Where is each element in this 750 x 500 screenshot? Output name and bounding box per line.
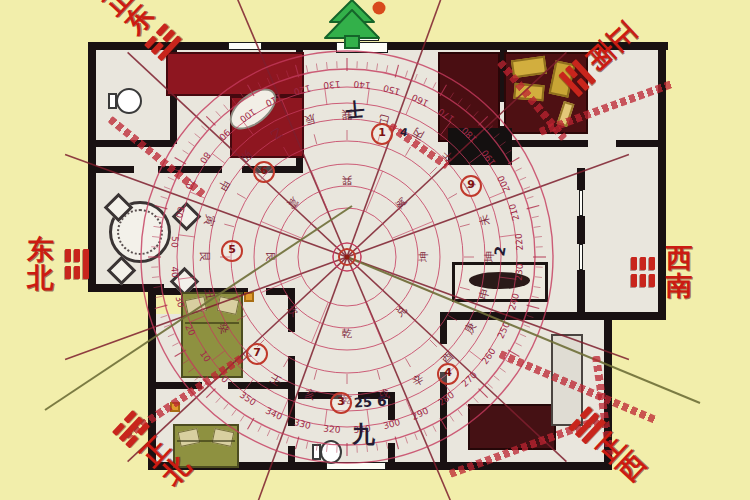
degree-tick <box>175 350 186 357</box>
mountain-char: 卯 <box>238 148 255 165</box>
luoshu-number-3: 3 <box>330 392 352 414</box>
degree-label: 80 <box>198 150 213 165</box>
mountain-char: 癸 <box>215 320 232 336</box>
degree-tick <box>286 71 288 78</box>
degree-tick <box>415 433 418 440</box>
bagua-divider <box>261 221 302 238</box>
bagua-divider <box>366 302 383 343</box>
bagua-char: 震 <box>285 195 301 211</box>
mountain-char: 壬 <box>268 372 284 389</box>
degree-label: 320 <box>323 424 341 435</box>
degree-tick <box>535 237 542 238</box>
degree-tick <box>473 397 478 402</box>
degree-tick <box>405 71 407 78</box>
trigram-broken-bar <box>74 249 80 262</box>
bagua-divider <box>311 302 328 343</box>
degree-tick <box>494 376 499 380</box>
trigram-broken-bar <box>640 274 646 287</box>
degree-tick <box>153 226 160 227</box>
degree-tick <box>258 425 261 431</box>
degree-tick <box>248 418 255 429</box>
direction-label-southwest: 西南 <box>628 244 694 300</box>
degree-label: 340 <box>264 406 284 422</box>
annotation-text: 九 <box>352 419 375 450</box>
degree-tick <box>508 158 519 165</box>
north-arrow-tier2 <box>325 10 379 38</box>
degree-tick <box>532 296 539 297</box>
degree-label: 120 <box>292 83 311 97</box>
trigram-solid-bar <box>83 249 89 279</box>
degree-tick <box>224 105 228 110</box>
direction-label-southwest-text: 西南 <box>665 244 694 300</box>
inner-tick <box>448 194 457 199</box>
degree-tick <box>466 404 470 409</box>
degree-tick <box>152 277 159 278</box>
inner-tick <box>377 370 380 380</box>
degree-tick <box>240 416 244 422</box>
inner-tick <box>460 287 470 290</box>
degree-tick <box>479 389 488 398</box>
trigram-row <box>640 257 646 287</box>
mountain-char: 庚 <box>462 320 479 336</box>
degree-tick <box>164 187 171 190</box>
degree-tick <box>487 383 492 388</box>
degree-label: 190 <box>480 148 498 168</box>
degree-tick <box>172 343 178 346</box>
degree-tick <box>458 98 462 104</box>
degree-tick <box>153 287 160 288</box>
inner-tick <box>284 147 289 156</box>
sector-divider <box>244 122 254 135</box>
degree-tick <box>494 134 499 138</box>
degree-tick <box>532 216 539 217</box>
degree-label: 210 <box>507 202 521 221</box>
degree-tick <box>206 116 215 125</box>
degree-label: 250 <box>496 320 512 340</box>
degree-tick <box>267 78 270 84</box>
floor-plan-stage: 0102030405060708090100110120130140150160… <box>0 0 750 500</box>
degree-tick <box>527 315 534 317</box>
degree-label: 110 <box>264 92 284 108</box>
degree-tick <box>206 389 215 398</box>
trigram-row <box>65 249 71 279</box>
degree-tick <box>327 62 328 69</box>
sector-divider <box>441 122 451 135</box>
degree-tick <box>367 62 368 69</box>
degree-tick <box>240 93 244 99</box>
degree-label: 200 <box>496 174 512 194</box>
sector-divider <box>406 100 412 115</box>
sector-divider <box>469 154 482 164</box>
degree-tick <box>224 404 228 409</box>
sector-divider <box>178 277 194 279</box>
mountain-char: 丑 <box>202 287 217 301</box>
degree-label: 130 <box>323 79 341 90</box>
degree-tick <box>155 216 162 217</box>
degree-label: 50 <box>169 236 180 249</box>
trigram-bars <box>65 249 89 279</box>
bagua-char: 巽 <box>342 175 353 187</box>
degree-tick <box>450 416 454 422</box>
degree-tick <box>161 315 168 317</box>
degree-tick <box>534 226 541 227</box>
degree-tick <box>306 65 307 72</box>
trigram-broken-bar <box>640 257 646 270</box>
degree-label: 280 <box>436 390 456 408</box>
luoshu-number-6: 6 <box>253 161 275 183</box>
degree-tick <box>520 334 526 337</box>
north-arrow-icon <box>318 0 398 60</box>
degree-label: 10 <box>198 349 213 364</box>
degree-tick <box>327 445 328 452</box>
degree-label: 260 <box>480 346 498 366</box>
degree-tick <box>277 433 280 440</box>
degree-label: 220 <box>514 233 525 251</box>
sector-divider <box>469 351 482 361</box>
degree-tick <box>450 93 454 99</box>
inner-tick <box>314 134 317 144</box>
trigram-broken-bar <box>65 266 71 279</box>
bagua-divider <box>392 221 433 238</box>
direction-label-northeast-text: 东北 <box>26 236 55 292</box>
degree-label: 140 <box>353 79 371 90</box>
degree-tick <box>424 78 427 84</box>
trigram-broken-bar <box>74 266 80 279</box>
inner-tick <box>460 224 470 227</box>
bagua-divider <box>366 171 383 212</box>
mountain-char: 寅 <box>202 213 217 227</box>
degree-tick <box>386 442 387 449</box>
degree-tick <box>527 196 534 198</box>
bagua-divider <box>311 171 328 212</box>
degree-tick <box>515 343 521 346</box>
sector-divider <box>212 351 225 361</box>
sector-divider <box>244 379 254 392</box>
trigram-southwest-icon <box>631 257 655 287</box>
degree-tick <box>479 116 488 125</box>
degree-tick <box>386 65 387 72</box>
degree-tick <box>188 368 194 372</box>
degree-tick <box>506 150 512 154</box>
north-arrow-stem <box>345 36 359 48</box>
degree-tick <box>405 437 407 444</box>
sector-divider <box>212 154 225 164</box>
degree-tick <box>440 418 447 429</box>
degree-label: 160 <box>410 92 430 108</box>
inner-tick <box>237 316 246 321</box>
bagua-char: 坎 <box>285 303 301 319</box>
degree-tick <box>473 111 478 116</box>
degree-label: 180 <box>460 125 479 144</box>
degree-tick <box>316 63 317 70</box>
bagua-char: 兑 <box>393 302 409 318</box>
degree-label: 60 <box>174 205 187 219</box>
degree-tick <box>258 82 261 88</box>
degree-tick <box>175 158 186 165</box>
inner-tick <box>314 370 317 380</box>
degree-label: 240 <box>507 292 521 311</box>
degree-tick <box>232 410 236 416</box>
degree-tick <box>377 444 378 451</box>
degree-tick <box>152 237 159 238</box>
degree-tick <box>155 296 162 297</box>
luoshu-number-1: 1 <box>371 123 393 145</box>
inner-tick <box>284 358 289 367</box>
annotation-text: 6 <box>377 393 387 409</box>
inner-tick <box>237 194 246 199</box>
trigram-broken-bar <box>65 249 71 262</box>
degree-tick <box>161 196 168 198</box>
degree-tick <box>183 360 189 364</box>
degree-tick <box>500 368 506 372</box>
mountain-char: 申 <box>477 287 492 301</box>
degree-label: 20 <box>183 323 197 338</box>
degree-label: 90 <box>217 127 232 142</box>
degree-tick <box>195 376 200 380</box>
luoshu-number-7: 7 <box>246 343 268 365</box>
annotation-text: 干 <box>344 95 365 123</box>
degree-tick <box>458 410 462 416</box>
mountain-char: 艮 <box>198 252 211 263</box>
degree-tick <box>216 397 221 402</box>
luoshu-number-4: 4 <box>437 363 459 385</box>
annotation-text: 25 <box>353 394 372 410</box>
trigram-broken-bar <box>631 274 637 287</box>
degree-tick <box>520 177 526 180</box>
degree-tick <box>277 74 280 81</box>
inner-tick <box>448 316 457 321</box>
bagua-char: 乾 <box>342 327 353 339</box>
trigram-broken-bar <box>649 274 655 287</box>
degree-tick <box>232 98 236 104</box>
inner-tick <box>406 358 411 367</box>
degree-tick <box>201 126 206 131</box>
mountain-char: 未 <box>477 213 492 227</box>
degree-tick <box>466 105 470 110</box>
degree-tick <box>415 74 418 81</box>
degree-label: 230 <box>514 263 525 281</box>
degree-tick <box>267 430 270 436</box>
bagua-char: 离 <box>392 195 408 211</box>
degree-tick <box>424 430 427 436</box>
trigram-row <box>83 249 89 279</box>
degree-tick <box>195 134 200 138</box>
degree-tick <box>433 82 436 88</box>
degree-tick <box>168 334 174 337</box>
compass-hub-dot <box>345 255 350 260</box>
degree-tick <box>168 177 174 180</box>
inner-tick <box>406 147 411 156</box>
degree-label: 300 <box>382 417 401 431</box>
mountain-char: 乙 <box>268 125 284 142</box>
degree-tick <box>216 111 221 116</box>
degree-tick <box>188 142 194 146</box>
sector-divider <box>190 316 205 322</box>
degree-tick <box>535 277 542 278</box>
degree-tick <box>433 425 436 431</box>
degree-tick <box>500 142 506 146</box>
trigram-broken-bar <box>649 257 655 270</box>
trigram-northeast-icon <box>65 249 89 279</box>
arrow-ornament-dot <box>373 2 386 15</box>
mountain-char: 辛 <box>410 372 426 389</box>
degree-label: 150 <box>382 83 401 97</box>
degree-tick <box>286 437 288 444</box>
degree-label: 290 <box>410 406 430 422</box>
sector-divider <box>282 399 288 414</box>
trigram-row <box>74 249 80 279</box>
degree-tick <box>515 168 521 171</box>
mountain-char: 辰 <box>303 112 317 127</box>
mountain-char: 亥 <box>303 387 317 402</box>
degree-tick <box>248 85 255 96</box>
sector-divider <box>489 192 504 198</box>
trigram-row <box>649 257 655 287</box>
degree-tick <box>440 85 447 96</box>
trigram-broken-bar <box>631 257 637 270</box>
degree-label: 270 <box>460 370 479 389</box>
degree-tick <box>523 187 530 190</box>
direction-label-northeast: 东北 <box>26 236 92 292</box>
degree-tick <box>316 444 317 451</box>
degree-label: 100 <box>238 106 258 124</box>
degree-label: 40 <box>169 266 180 279</box>
luoshu-number-5: 5 <box>221 240 243 262</box>
degree-tick <box>534 287 541 288</box>
mountain-char: 甲 <box>215 178 232 194</box>
bagua-char: 坤 <box>417 252 429 263</box>
degree-label: 170 <box>436 106 456 124</box>
degree-tick <box>306 442 307 449</box>
luoshu-number-9: 9 <box>460 175 482 197</box>
degree-label: 330 <box>293 417 312 431</box>
degree-tick <box>377 63 378 70</box>
trigram-bars <box>631 257 655 287</box>
bagua-divider <box>261 276 302 293</box>
inner-tick <box>224 224 234 227</box>
degree-tick <box>523 325 530 328</box>
degree-tick <box>487 126 492 131</box>
trigram-row <box>631 257 637 287</box>
degree-tick <box>183 150 189 154</box>
degree-label: 350 <box>238 390 258 408</box>
